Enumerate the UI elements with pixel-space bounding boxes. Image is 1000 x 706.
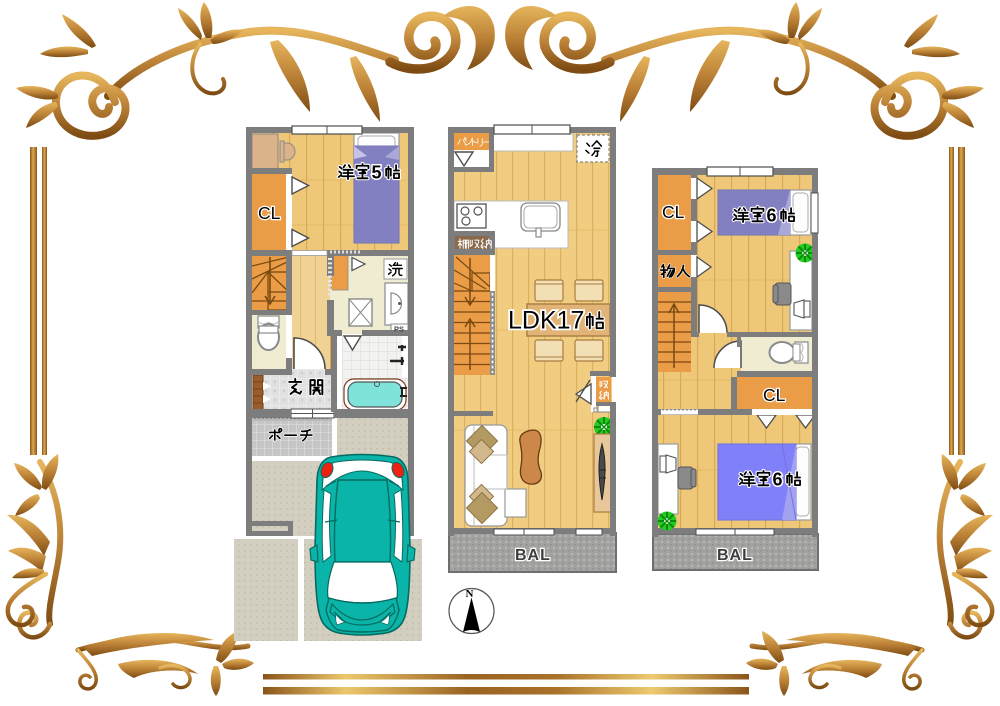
svg-text:CL: CL [258, 203, 281, 223]
svg-text:CL: CL [763, 385, 786, 405]
svg-text:N: N [466, 588, 474, 600]
svg-text:5: 5 [372, 163, 382, 183]
svg-text:PS: PS [394, 325, 404, 334]
svg-text:LDK17: LDK17 [508, 307, 584, 335]
svg-text:6: 6 [767, 206, 777, 226]
svg-text:BAL: BAL [515, 547, 551, 564]
svg-text:BAL: BAL [717, 547, 753, 564]
svg-text:CL: CL [662, 202, 685, 222]
svg-text:6: 6 [773, 470, 783, 490]
